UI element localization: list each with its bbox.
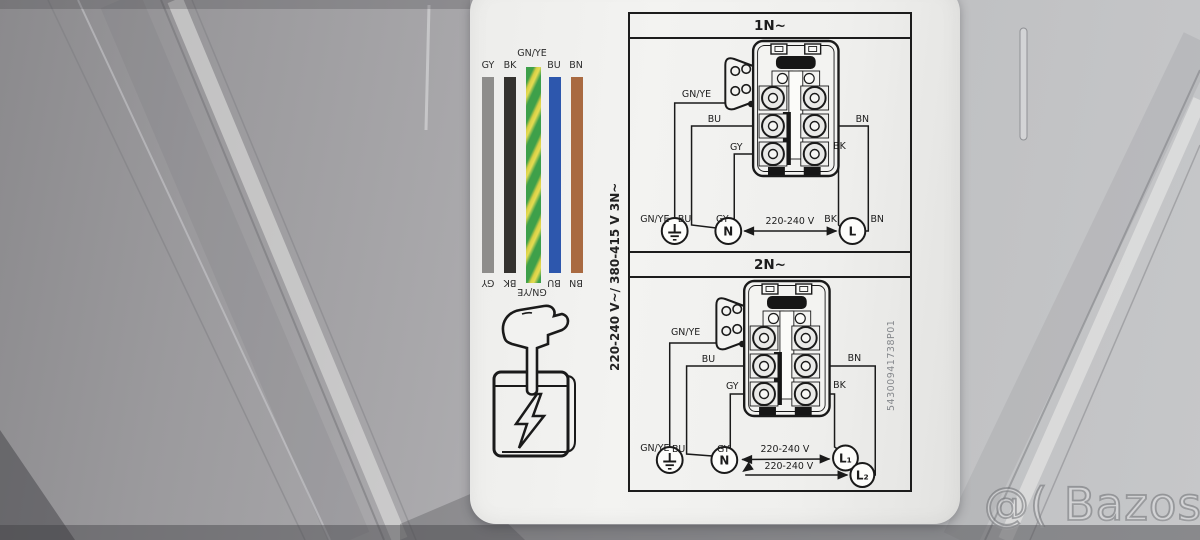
voltage-rating-vertical-text: 220-240 V~/ 380-415 V 3N~ (608, 158, 622, 396)
neutral-terminal-label: N (719, 453, 729, 467)
diagram-1-title: 1N~ (630, 14, 910, 39)
bu-label-top: BU (702, 354, 715, 365)
diagram-2n-two-phase: N L₁ L₂ 220-240 V 220-240 V GN/YE BU GY (630, 278, 910, 490)
pointing-hand-icon (503, 306, 568, 395)
legend-top-label-bk: BK (504, 60, 517, 71)
legend-bar-bn (571, 77, 583, 273)
gy-label-top: GY (730, 142, 743, 153)
bk-label-top: BK (833, 380, 846, 391)
voltage-value-2: 220-240 V (764, 461, 813, 472)
arrowhead-left-icon (740, 462, 754, 476)
diagram-1n-drawing: N L 220-240 V GN/YE BU GY BK BN GN/YE BU… (630, 39, 910, 251)
legend-bottom-label-bn: BN (569, 277, 583, 288)
diagram-2n-drawing: N L₁ L₂ 220-240 V 220-240 V GN/YE BU GY (630, 278, 910, 490)
gy-label-bottom: GY (716, 214, 729, 225)
neutral-terminal-label: N (723, 224, 733, 238)
legend-top-label-bn: BN (569, 60, 583, 71)
gnye-label-top: GN/YE (682, 89, 711, 100)
voltage-value: 220-240 V (765, 216, 814, 227)
gnye-label-bottom: GN/YE (640, 214, 669, 225)
legend-top-label-bu: BU (547, 60, 560, 71)
arrowhead-right-icon (827, 226, 838, 235)
line-terminal-label: L (849, 224, 857, 238)
photo-of-appliance-back-panel: GY BK GN/YE BU BN GY BK GN/YE BU BN (0, 0, 1200, 540)
arrowhead-left-icon (741, 455, 752, 464)
legend-top-label-gnye: GN/YE (517, 48, 546, 59)
legend-bar-bk (504, 77, 516, 273)
bn-label-bottom: BN (870, 214, 884, 225)
arrowhead-right-icon (820, 454, 831, 463)
legend-bottom-label-gy: GY (482, 277, 495, 288)
gnye-label-bottom: GN/YE (640, 443, 669, 454)
voltage-arrow-1 (742, 459, 829, 460)
bu-label-bottom: BU (678, 214, 691, 225)
consult-manual-icon (480, 302, 590, 462)
bu-label-bottom: BU (672, 444, 685, 455)
legend-bar-gy (482, 77, 494, 273)
gy-label-bottom: GY (717, 444, 730, 455)
bn-label-top: BN (856, 114, 870, 125)
diagram-1n-single-phase: N L 220-240 V GN/YE BU GY BK BN GN/YE BU… (630, 39, 910, 251)
gy-label-top: GY (726, 381, 739, 392)
line2-terminal-label: L₂ (856, 468, 869, 482)
wiring-diagram-sticker: GY BK GN/YE BU BN GY BK GN/YE BU BN (470, 0, 960, 524)
bk-label-bottom: BK (824, 214, 837, 225)
legend-bottom-label-bk: BK (504, 277, 517, 288)
legend-top-label-gy: GY (482, 60, 495, 71)
lightning-bolt-icon (516, 394, 544, 448)
terminal-block (716, 281, 829, 416)
terminal-block (725, 41, 838, 176)
wiring-diagrams-frame: 1N~ N L (628, 12, 912, 492)
line1-terminal-label: L₁ (839, 451, 852, 465)
legend-bar-bu (549, 77, 561, 273)
diagram-2-title: 2N~ (630, 251, 910, 278)
legend-bottom-label-bu: BU (547, 277, 560, 288)
legend-bar-gnye (526, 67, 541, 283)
bu-label-top: BU (708, 114, 721, 125)
voltage-value-1: 220-240 V (760, 444, 809, 455)
legend-bottom-label-gnye: GN/YE (517, 286, 546, 297)
arrowhead-right-icon (838, 470, 849, 479)
bazos-watermark: @( Bazos.sk (984, 478, 1200, 531)
bn-label-top: BN (848, 353, 862, 364)
arrowhead-left-icon (743, 226, 754, 235)
bk-label-top: BK (833, 141, 846, 152)
gnye-label-top: GN/YE (671, 327, 700, 338)
